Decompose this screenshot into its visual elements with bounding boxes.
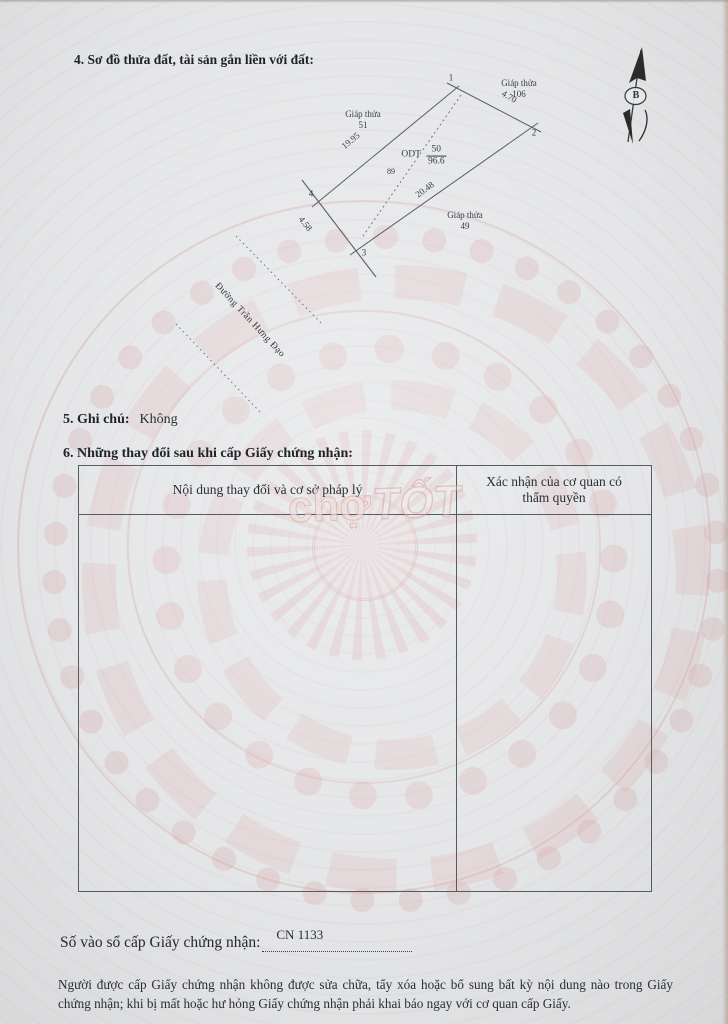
plot-number-area-fraction: 50 96.6 — [426, 145, 447, 168]
plot-number: 50 — [432, 145, 442, 155]
photo-edge-right — [722, 0, 728, 1024]
parcel-code-area: ODT 50 96.6 — [401, 145, 446, 168]
photo-edge-top — [0, 0, 728, 3]
plot-area: 96.6 — [426, 156, 447, 168]
adjacent-number: 106 — [512, 89, 526, 99]
adjacent-label: Giáp thửa — [447, 210, 483, 220]
table-header-row: Nội dung thay đổi và cơ sở pháp lý Xác n… — [79, 466, 651, 515]
registry-line: Số vào sổ cấp Giấy chứng nhận: CN 1133 — [60, 933, 412, 952]
registry-dotted-line: CN 1133 — [262, 933, 412, 952]
registry-label: Số vào sổ cấp Giấy chứng nhận: — [60, 934, 260, 952]
notes-label: 5. Ghi chú: — [63, 412, 130, 427]
adjacent-plot-106: Giáp thửa 106 — [501, 78, 537, 101]
notes-value: Không — [140, 412, 178, 427]
vertex-4-label: 4 — [309, 188, 314, 199]
adjacent-plot-49: Giáp thửa 49 — [447, 210, 483, 233]
table-body-row — [79, 515, 651, 891]
vertex-1-label: 1 — [449, 72, 454, 83]
header-changes-content: Nội dung thay đổi và cơ sở pháp lý — [79, 466, 456, 514]
section6-heading: 6. Những thay đổi sau khi cấp Giấy chứng… — [63, 446, 353, 462]
house-number-label: 89 — [387, 167, 395, 177]
adjacent-label: Giáp thửa — [345, 109, 381, 119]
adjacent-label: Giáp thửa — [501, 78, 537, 88]
land-use-code: ODT — [401, 150, 421, 162]
adjacent-plot-51: Giáp thửa 51 — [345, 109, 381, 132]
cell-changes-content — [79, 515, 456, 891]
vertex-2-label: 2 — [532, 127, 537, 138]
registry-number: CN 1133 — [276, 927, 323, 943]
north-b-label: B — [633, 90, 640, 103]
section5-heading: 5. Ghi chú:Không — [63, 412, 178, 428]
cell-authority-confirmation — [456, 515, 651, 891]
certificate-notice: Người được cấp Giấy chứng nhận không đượ… — [58, 976, 673, 1013]
header-authority-confirmation: Xác nhận của cơ quan có thẩm quyền — [456, 466, 651, 514]
section4-heading: 4. Sơ đồ thửa đất, tài sản gắn liền với … — [74, 52, 314, 68]
vertex-3-label: 3 — [362, 247, 367, 258]
changes-table: Nội dung thay đổi và cơ sở pháp lý Xác n… — [78, 465, 652, 892]
adjacent-number: 51 — [359, 120, 368, 130]
adjacent-number: 49 — [461, 221, 470, 231]
